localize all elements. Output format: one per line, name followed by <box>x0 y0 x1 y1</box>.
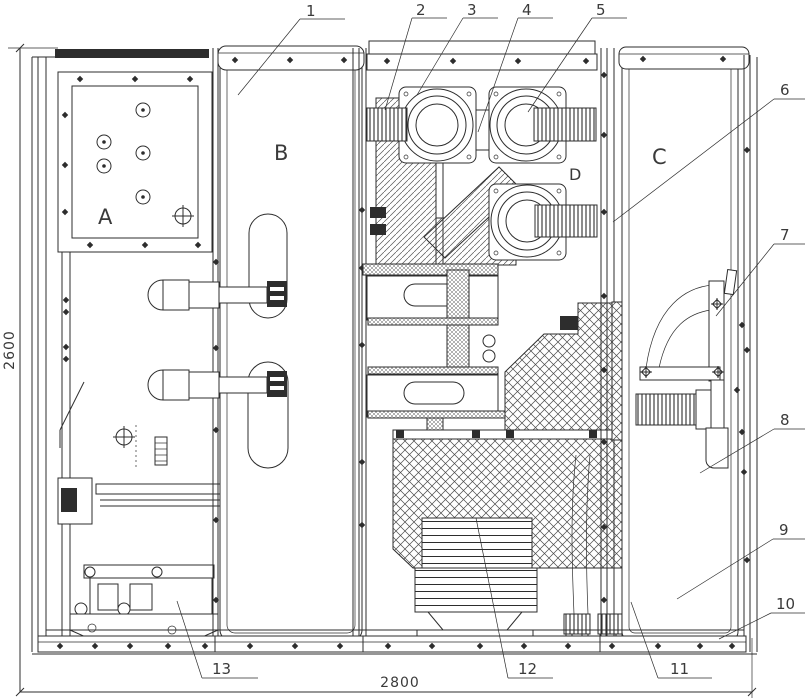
bushing-2 <box>476 87 596 163</box>
panel-knob <box>97 159 111 173</box>
panel-knob <box>136 146 150 160</box>
callout-label-1: 1 <box>306 2 316 20</box>
bushing-2-insulator <box>534 108 596 141</box>
compartment-d-label: D <box>569 165 581 184</box>
panel-c: C <box>619 47 749 640</box>
callout-label-10: 10 <box>776 595 795 613</box>
truck-assembly <box>70 565 218 638</box>
callout-label-13: 13 <box>212 660 231 678</box>
callout-label-2: 2 <box>416 1 426 19</box>
dimension-width-label: 2800 <box>380 675 420 691</box>
callout-label-11: 11 <box>670 660 689 678</box>
breaker-mechanism <box>58 382 167 524</box>
callout-label-7: 7 <box>780 226 790 244</box>
compartment-c-label: C <box>652 145 667 169</box>
engineering-drawing-page: 2600 2800 A <box>0 0 805 700</box>
callout-label-8: 8 <box>780 411 790 429</box>
panel-knob <box>97 135 111 149</box>
compartment-a-label: A <box>98 205 113 229</box>
callout-label-4: 4 <box>522 1 532 19</box>
panel-b: B <box>213 46 364 648</box>
callout-label-12: 12 <box>518 660 537 678</box>
cable-bushing-insulator <box>636 394 696 425</box>
bushing-3 <box>489 184 597 260</box>
panel-knob <box>136 190 150 204</box>
bushing-1-insulator <box>367 108 407 141</box>
dimension-height: 2600 <box>2 44 58 696</box>
callout-label-9: 9 <box>779 521 789 539</box>
callout-label-6: 6 <box>780 81 790 99</box>
switchgear-section-drawing: 2600 2800 A <box>0 0 805 700</box>
bellows-insulator <box>415 518 537 640</box>
bushing-3-insulator <box>535 205 597 237</box>
panel-knob <box>136 103 150 117</box>
callout-label-5: 5 <box>596 1 606 19</box>
dimension-height-label: 2600 <box>2 330 18 370</box>
compartment-b-label: B <box>274 141 288 165</box>
callout-label-3: 3 <box>467 1 477 19</box>
low-voltage-compartment-a: A <box>58 72 212 252</box>
